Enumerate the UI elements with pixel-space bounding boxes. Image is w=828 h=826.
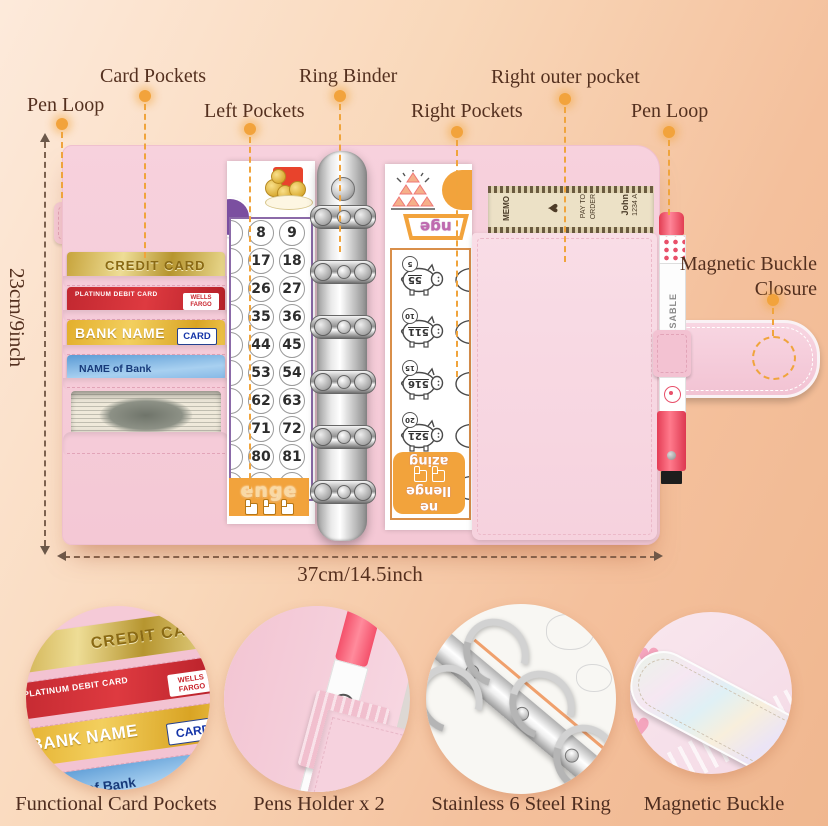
leader-line bbox=[668, 140, 670, 215]
arrow-up-icon bbox=[40, 133, 50, 142]
leader-line bbox=[61, 132, 63, 198]
feature-label: Magnetic Buckle bbox=[628, 793, 800, 816]
pen-cap bbox=[659, 212, 684, 235]
number-circle: 36 bbox=[279, 304, 305, 330]
leader-line bbox=[339, 104, 341, 252]
feature-card-pockets-photo: CREDIT CARD PLATINUM DEBIT CARD WELLSFAR… bbox=[26, 606, 210, 790]
callout-dot bbox=[244, 123, 256, 135]
cash-pocket-edge bbox=[63, 432, 229, 456]
binder-ring bbox=[310, 425, 376, 449]
pen-rivet bbox=[667, 451, 676, 460]
number-circle: 63 bbox=[279, 388, 305, 414]
number-row: 3536 bbox=[231, 303, 311, 331]
check-memo: MEMO bbox=[502, 196, 511, 221]
bank-logo-line1: WELLS bbox=[191, 295, 212, 302]
number-circle: 72 bbox=[279, 416, 305, 442]
piggy-row: 20 521 bbox=[392, 406, 469, 458]
challenge-banner: enge bbox=[229, 478, 309, 516]
binder-ring bbox=[310, 480, 376, 504]
callout-line1: Magnetic Buckle bbox=[680, 253, 817, 275]
card-badge: CARD bbox=[177, 328, 217, 345]
callout-ring-binder: Ring Binder bbox=[299, 65, 397, 88]
height-dimension-label: 23cm/9inch bbox=[4, 268, 29, 367]
callout-dot bbox=[56, 118, 68, 130]
feature-label: Pens Holder x 2 bbox=[224, 793, 414, 816]
callout-dot bbox=[767, 294, 779, 306]
callout-left-pockets: Left Pockets bbox=[204, 100, 305, 123]
number-row: 2627 bbox=[231, 275, 311, 303]
arrow-down-icon bbox=[40, 546, 50, 555]
number-circle-partial bbox=[229, 360, 243, 386]
number-circle: 71 bbox=[248, 416, 274, 442]
arrow-right-icon bbox=[654, 551, 663, 561]
number-circle: 17 bbox=[248, 248, 274, 274]
callout-card-pockets: Card Pockets bbox=[100, 65, 206, 88]
height-dimension-line bbox=[44, 142, 46, 546]
binder-ring bbox=[310, 315, 376, 339]
number-circle: 62 bbox=[248, 388, 274, 414]
coin-value: 15 bbox=[402, 360, 418, 376]
feature-label: Stainless 6 Steel Ring bbox=[418, 793, 624, 816]
thumbs-up-icons bbox=[414, 470, 445, 482]
banner-line: llenge bbox=[406, 483, 451, 498]
pen-lower-barrel bbox=[659, 377, 686, 413]
challenge-title-banner: nge bbox=[403, 214, 469, 240]
leader-line bbox=[249, 137, 251, 489]
callout-dot bbox=[334, 90, 346, 102]
paper-doodle bbox=[576, 664, 612, 692]
leader-line bbox=[456, 140, 458, 377]
bank-logo-line2: FARGO bbox=[190, 302, 211, 309]
number-circle-partial bbox=[229, 304, 243, 330]
number-circle-partial bbox=[229, 276, 243, 302]
bank-logo-box: WELLSFARGO bbox=[167, 669, 210, 697]
ring-binder-spine bbox=[317, 151, 367, 541]
bank-name-label: BANK NAME bbox=[29, 721, 139, 756]
card-badge: CARD bbox=[166, 717, 210, 746]
challenge-title-text: nge bbox=[420, 218, 452, 236]
savings-challenge-sheet: 89 1718 2627 3536 4445 5354 6263 7172 80… bbox=[227, 161, 315, 524]
number-circle: 53 bbox=[248, 360, 274, 386]
piggy-amount: 511 bbox=[408, 326, 429, 337]
paper-doodle bbox=[546, 614, 594, 650]
blue-bank-label: NAME of Bank bbox=[43, 775, 137, 790]
check-order: ORDER bbox=[590, 194, 597, 219]
check-address: 1234 A bbox=[632, 194, 639, 216]
feature-magnetic-buckle-photo: ♥ ♥ bbox=[630, 612, 792, 774]
arrow-left-icon bbox=[57, 551, 66, 561]
number-grid: 89 1718 2627 3536 4445 5354 6263 7172 80… bbox=[229, 217, 313, 501]
gold-ingots-icon bbox=[389, 170, 437, 214]
leader-line bbox=[144, 104, 146, 258]
pen-grip bbox=[657, 411, 686, 471]
number-row: 4445 bbox=[231, 331, 311, 359]
width-dimension-line bbox=[64, 556, 656, 558]
number-circle-partial bbox=[229, 332, 243, 358]
credit-card-label: CREDIT CARD bbox=[105, 258, 206, 273]
check-in-outer-pocket: MEMO ♥ PAY TO ORDER John 1234 A bbox=[488, 186, 654, 234]
bank-logo-box: WELLS FARGO bbox=[183, 293, 219, 310]
number-circle-partial bbox=[229, 220, 243, 246]
callout-dot bbox=[559, 93, 571, 105]
product-diagram: Pen Loop Card Pockets Left Pockets Ring … bbox=[0, 0, 828, 826]
piggy-amount: 516 bbox=[408, 378, 429, 389]
check-logo-icon: ♥ bbox=[543, 203, 563, 213]
piggy-challenge-sheet: nge 5 55 10 511 bbox=[385, 164, 472, 530]
callout-pen-loop-left: Pen Loop bbox=[27, 94, 104, 117]
credit-card-label: CREDIT CARD bbox=[90, 619, 210, 654]
number-circle: 54 bbox=[279, 360, 305, 386]
number-circle: 9 bbox=[279, 220, 305, 246]
width-dimension-label: 37cm/14.5inch bbox=[255, 562, 465, 587]
piggy-amount: 521 bbox=[408, 430, 429, 441]
bank-name-label: BANK NAME bbox=[75, 325, 165, 341]
piggy-bank-icon-partial bbox=[453, 414, 471, 454]
piggy-bank-icon: 15 516 bbox=[400, 362, 444, 402]
check-name: John bbox=[620, 194, 630, 216]
coin-value: 10 bbox=[402, 308, 418, 324]
leader-line bbox=[772, 308, 774, 336]
right-pen-loop bbox=[653, 330, 691, 377]
debit-card-label: PLATINUM DEBIT CARD bbox=[75, 291, 158, 298]
budget-binder: CREDIT CARD PLATINUM DEBIT CARD WELLS FA… bbox=[62, 145, 660, 545]
pen-logo-icon bbox=[664, 386, 681, 403]
number-circle: 8 bbox=[248, 220, 274, 246]
magnetic-buckle-strap bbox=[676, 320, 820, 398]
callout-dot bbox=[139, 90, 151, 102]
coin-value: 20 bbox=[402, 412, 418, 428]
coin-value: 5 bbox=[402, 256, 418, 272]
piggy-bank-icon: 20 521 bbox=[400, 414, 444, 454]
binder-ring bbox=[310, 370, 376, 394]
number-circle: 26 bbox=[248, 276, 274, 302]
number-row: 8081 bbox=[231, 443, 311, 471]
number-circle: 81 bbox=[279, 444, 305, 470]
number-row: 1718 bbox=[231, 247, 311, 275]
number-circle: 44 bbox=[248, 332, 274, 358]
thumbs-up-icons bbox=[245, 503, 294, 515]
callout-line2: Closure bbox=[755, 278, 817, 300]
bank-name-card: BANK NAME CARD bbox=[67, 320, 225, 348]
callout-right-pockets: Right Pockets bbox=[411, 100, 523, 123]
magnet-position-circle bbox=[752, 336, 796, 380]
number-circle-partial bbox=[229, 248, 243, 274]
banner-line: ne bbox=[420, 499, 438, 514]
check-pay-to: PAY TO bbox=[580, 194, 587, 218]
number-circle: 80 bbox=[248, 444, 274, 470]
pen-tip bbox=[661, 471, 682, 484]
number-row: 7172 bbox=[231, 415, 311, 443]
callout-pen-loop-right: Pen Loop bbox=[631, 100, 708, 123]
number-row: 6263 bbox=[231, 387, 311, 415]
piggy-bank-icon: 5 55 bbox=[400, 258, 444, 298]
number-row: 89 bbox=[231, 219, 311, 247]
number-circle: 27 bbox=[279, 276, 305, 302]
callout-magnetic-buckle-closure: Magnetic Buckle Closure bbox=[655, 252, 817, 302]
piggy-amount: 55 bbox=[408, 274, 422, 285]
callout-dot bbox=[451, 126, 463, 138]
piggy-bank-icon: 10 511 bbox=[400, 310, 444, 350]
binder-ring bbox=[310, 260, 376, 284]
feature-pen-holder-photo: BOARD 1-2mm bbox=[224, 606, 410, 792]
binder-ring bbox=[310, 205, 376, 229]
feature-label: Functional Card Pockets bbox=[8, 793, 224, 816]
heart-icon: ♥ bbox=[630, 712, 651, 745]
leader-line bbox=[564, 107, 566, 262]
callout-right-outer-pocket: Right outer pocket bbox=[491, 66, 640, 89]
gold-coins-icon bbox=[263, 165, 313, 211]
number-circle-partial bbox=[229, 416, 243, 442]
blue-bank-label: NAME of Bank bbox=[79, 363, 151, 375]
amazing-challenge-banner: azing llenge ne bbox=[393, 452, 465, 514]
number-row: 5354 bbox=[231, 359, 311, 387]
right-pocket-flap bbox=[472, 233, 657, 540]
card-pocket-edge bbox=[63, 378, 229, 390]
number-circle: 18 bbox=[279, 248, 305, 274]
spine-button bbox=[331, 177, 355, 201]
feature-steel-rings-photo bbox=[426, 604, 616, 794]
card-stack-closeup: CREDIT CARD PLATINUM DEBIT CARD WELLSFAR… bbox=[26, 606, 210, 790]
number-circle-partial bbox=[229, 388, 243, 414]
number-circle: 35 bbox=[248, 304, 274, 330]
number-circle: 45 bbox=[279, 332, 305, 358]
number-circle-partial bbox=[229, 444, 243, 470]
callout-dot bbox=[663, 126, 675, 138]
